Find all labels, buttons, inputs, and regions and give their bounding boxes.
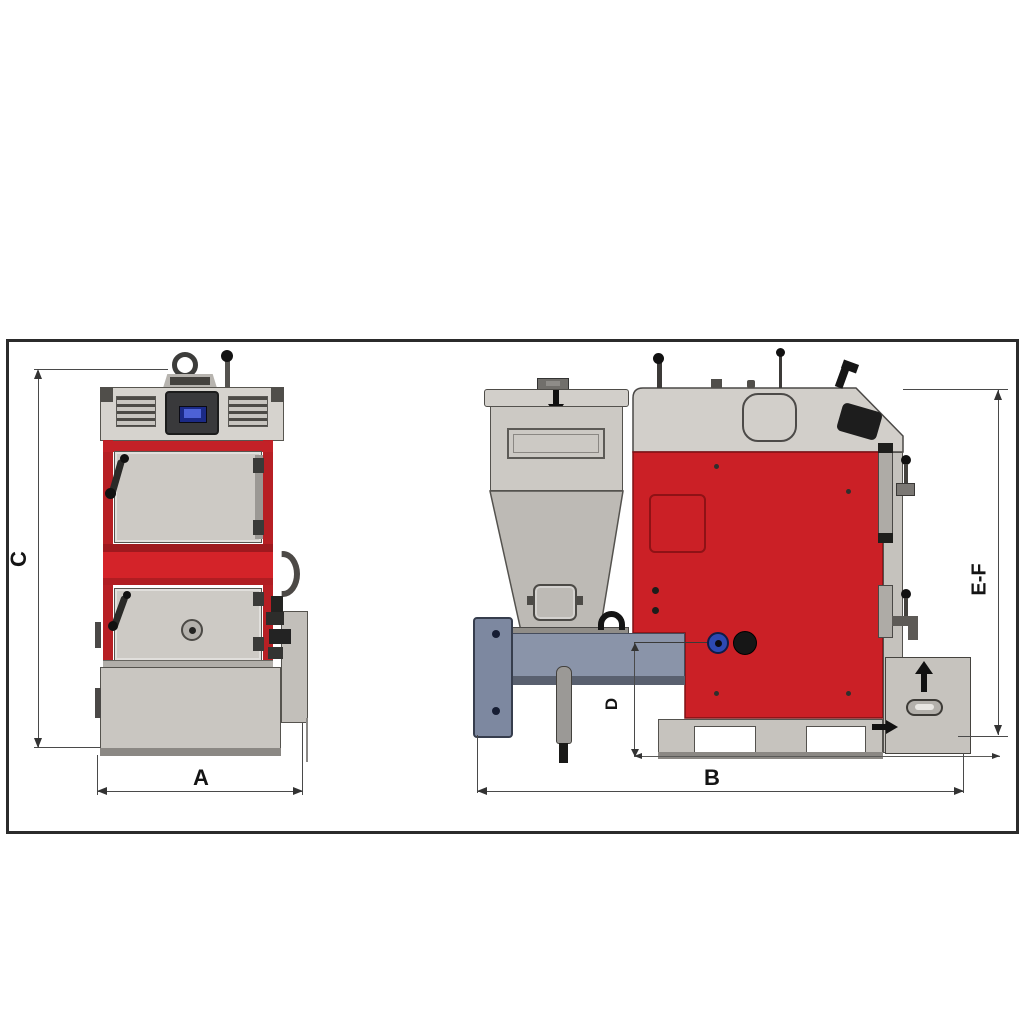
- lower-handle-knob-top: [123, 591, 131, 599]
- dim-ef-line: [998, 390, 999, 735]
- dim-b-line: [477, 791, 964, 792]
- dim-ef-arrow-top: [994, 390, 1002, 400]
- dim-c-label: C: [4, 544, 34, 574]
- dim-d-label: D: [600, 692, 624, 716]
- dim-c-ext-top: [34, 369, 168, 370]
- dim-d-arrow-top: [631, 643, 639, 651]
- cap-bolt-2-stem: [779, 355, 782, 388]
- feed-axis-line: [634, 642, 708, 643]
- panel-knob-2: [652, 607, 659, 614]
- taper-access-panel[interactable]: [533, 584, 577, 621]
- access-panel-clip-left: [527, 596, 534, 605]
- left-bracket-top: [95, 622, 101, 648]
- feeder-motor: [556, 666, 572, 744]
- dim-ef-arrow-bottom: [994, 725, 1002, 735]
- dim-a-arrow-left: [97, 787, 107, 795]
- upper-door-hinge-bottom: [253, 520, 264, 535]
- cap-bolt-1-ball: [653, 353, 664, 364]
- valve-block-3: [268, 647, 283, 659]
- pallet-slot-left: [694, 726, 756, 754]
- drawer-lift-arrow-stem: [921, 673, 927, 692]
- flange-bolt-bottom: [492, 707, 500, 715]
- housing-leg-line: [306, 718, 308, 762]
- dim-a-arrow-right: [293, 787, 303, 795]
- cleanout-port-cover: [742, 393, 797, 442]
- cap-bump-2: [747, 380, 755, 388]
- viewing-port-hole: [189, 627, 196, 634]
- valve-block-1: [266, 612, 284, 625]
- cap-bolt-2-ball: [776, 348, 785, 357]
- cap-bolt-1-stem: [657, 361, 662, 388]
- dim-c-arrow-top: [34, 369, 42, 379]
- upper-handle-knob-top: [120, 454, 129, 463]
- blue-port-center: [715, 640, 722, 647]
- dim-a-label: A: [188, 766, 214, 790]
- ash-box[interactable]: [100, 667, 281, 756]
- dim-c-arrow-bottom: [34, 738, 42, 748]
- drawer-out-arrow-stem: [872, 724, 886, 730]
- dim-c-ext-bottom: [34, 747, 100, 748]
- panel-corner-left: [100, 387, 113, 402]
- fuel-load-arrow-stem: [553, 390, 559, 404]
- burner-recess-outline: [649, 494, 706, 553]
- auger-tube-bottom: [512, 676, 685, 685]
- lower-door-hinge-top: [253, 592, 264, 606]
- flange-bolt-top: [492, 630, 500, 638]
- upper-door-hinge-top: [253, 458, 264, 473]
- dim-ef-ext-top: [903, 389, 1008, 390]
- drawer-slot-inner: [915, 704, 934, 710]
- floor-reference-line: [634, 756, 1000, 757]
- valve-block-2: [269, 629, 291, 644]
- hopper-lid-handle-notch: [546, 381, 560, 386]
- pallet-slot-right: [806, 726, 866, 754]
- dim-c-line: [38, 371, 39, 748]
- lower-handle-knob-bottom: [108, 621, 118, 631]
- floor-line-arrow-right: [992, 753, 1000, 759]
- dim-ef-label: E-F: [964, 556, 996, 602]
- mid-band-bottom-lip: [103, 578, 273, 585]
- panel-dot-1: [714, 464, 719, 469]
- dim-d-line: [634, 643, 635, 757]
- controller-display-glow: [184, 409, 201, 418]
- sensor-block-upper: [896, 483, 915, 496]
- dim-b-arrow-left: [477, 787, 487, 795]
- feeder-motor-tip: [559, 743, 568, 763]
- upper-handle-knob-bottom: [105, 488, 116, 499]
- panel-dot-3: [714, 691, 719, 696]
- rear-pipe-upper-cap-bottom: [878, 533, 893, 543]
- vent-grille-left: [116, 396, 156, 427]
- ash-box-bottom-edge: [100, 748, 281, 756]
- drain-pipe-vertical: [908, 616, 918, 640]
- panel-dot-4: [846, 691, 851, 696]
- mid-band-top-lip: [103, 544, 273, 552]
- boiler-dimension-drawing: C A: [0, 0, 1024, 1024]
- rear-pipe-lower: [878, 585, 893, 638]
- drawer-out-arrow-icon: [886, 720, 898, 734]
- dim-a-line: [97, 791, 303, 792]
- hopper-recess-inner: [513, 434, 599, 453]
- sensor-stem-lower: [904, 598, 908, 616]
- dim-b-label: B: [698, 766, 726, 790]
- floor-line-arrow-left: [634, 753, 642, 759]
- panel-corner-right: [271, 387, 284, 402]
- vent-pipe-cap: [221, 350, 233, 362]
- rear-pipe-upper-cap-top: [878, 443, 893, 453]
- panel-knob-1: [652, 587, 659, 594]
- access-panel-clip-right: [576, 596, 583, 605]
- hopper-recess-plate: [507, 428, 605, 459]
- lower-door-hinge-bottom: [253, 637, 264, 651]
- rear-pipe-upper: [878, 443, 893, 543]
- dim-b-ext-left: [477, 735, 478, 793]
- black-connection-port: [733, 631, 757, 655]
- left-bracket-bottom: [95, 688, 101, 718]
- dim-ef-ext-bottom: [958, 736, 1008, 737]
- upper-door[interactable]: [114, 451, 262, 543]
- side-housing-panel: [281, 611, 308, 723]
- panel-dot-2: [846, 489, 851, 494]
- dim-b-arrow-right: [954, 787, 964, 795]
- cap-bump-1: [711, 379, 722, 388]
- brand-plate: [170, 377, 210, 385]
- vent-grille-right: [228, 396, 268, 427]
- dim-a-ext-right: [302, 723, 303, 795]
